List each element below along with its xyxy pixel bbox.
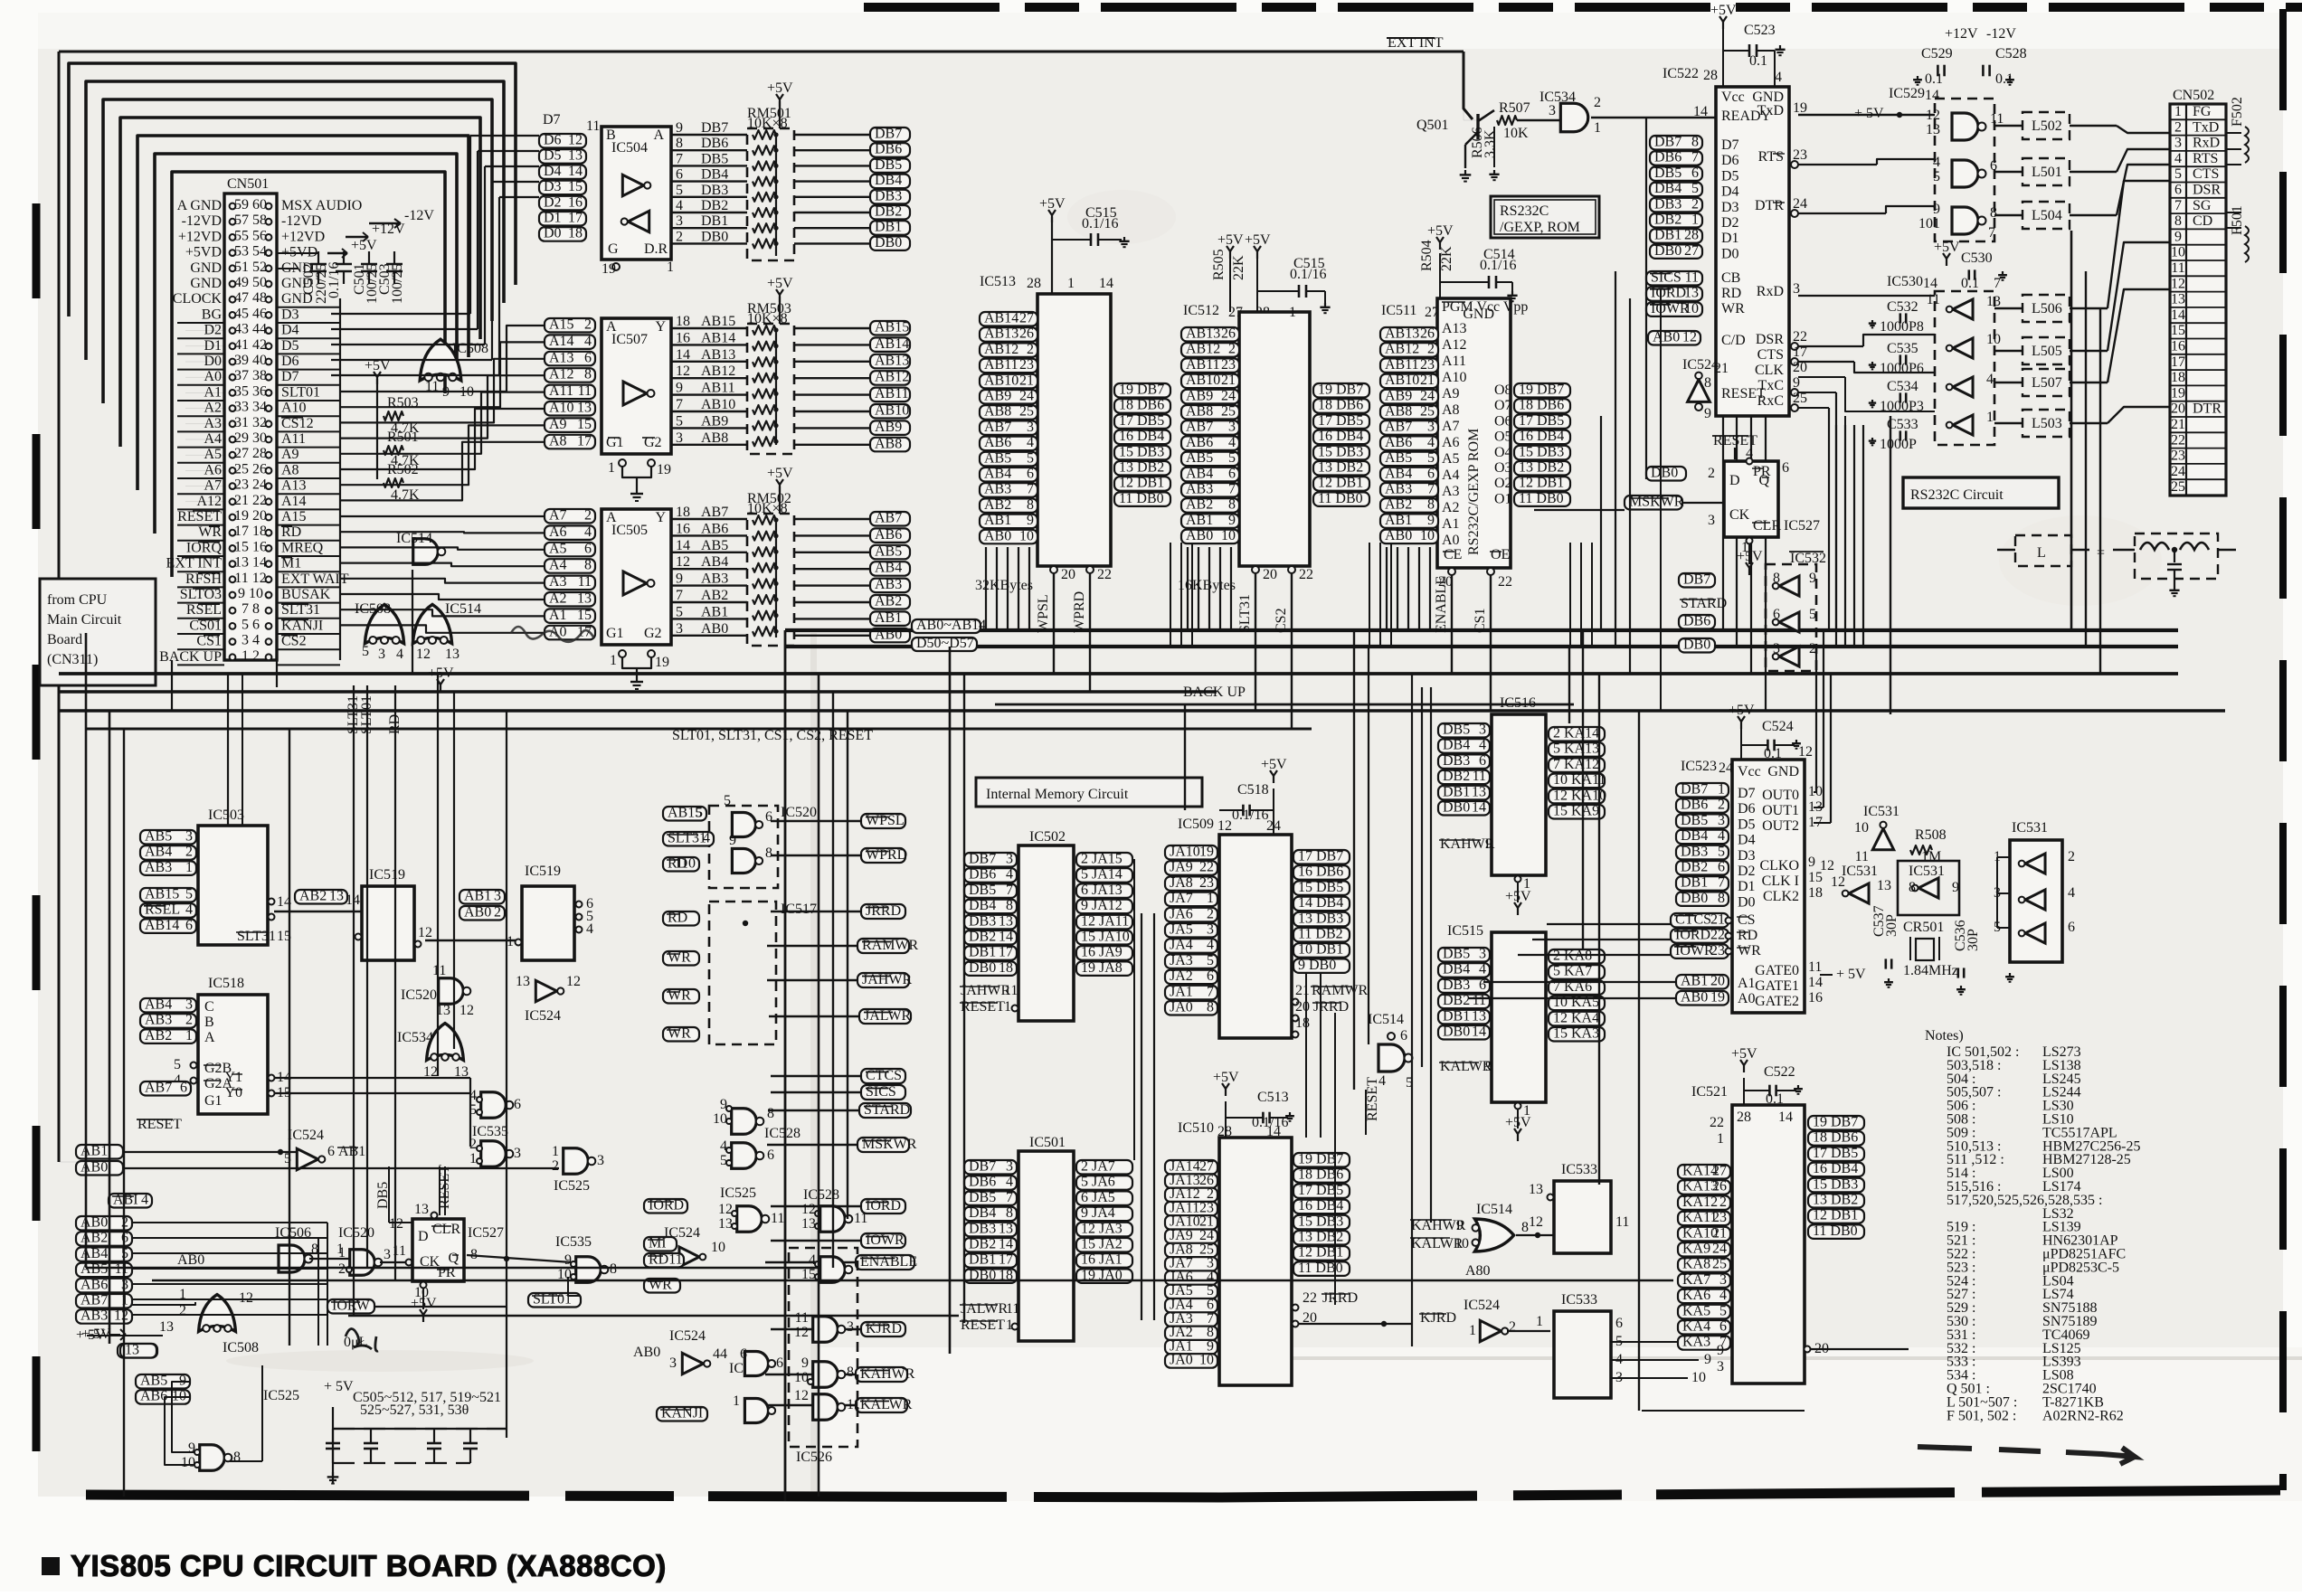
- svg-text:G1: G1: [204, 1093, 223, 1109]
- svg-text:A13: A13: [1442, 321, 1467, 336]
- svg-text:MSX AUDIO: MSX AUDIO: [281, 198, 362, 213]
- svg-text:15 DB3: 15 DB3: [1318, 444, 1363, 459]
- svg-text:D4: D4: [544, 164, 562, 179]
- svg-text:A8: A8: [549, 433, 567, 449]
- svg-text:5: 5: [676, 604, 683, 619]
- svg-text:DB4: DB4: [1681, 828, 1708, 844]
- svg-text:D6: D6: [1721, 153, 1739, 168]
- svg-text:Main Circuit: Main Circuit: [47, 612, 122, 628]
- svg-text:IORD: IORD: [649, 1198, 684, 1214]
- svg-text:+ 5V: + 5V: [1854, 106, 1884, 121]
- svg-text:15 JA2: 15 JA2: [1081, 1237, 1123, 1252]
- svg-text:A10: A10: [281, 401, 307, 416]
- svg-text:CN501: CN501: [227, 176, 269, 192]
- svg-text:1: 1: [1004, 999, 1011, 1015]
- svg-text:2: 2: [1027, 342, 1034, 357]
- svg-text:AB1: AB1: [701, 604, 728, 619]
- svg-text:A12: A12: [196, 494, 222, 509]
- svg-text:27: 27: [1019, 311, 1034, 326]
- svg-text:+5V: +5V: [1261, 757, 1287, 772]
- svg-text:DB5: DB5: [875, 157, 902, 173]
- svg-text:IC524: IC524: [525, 1008, 561, 1024]
- svg-text:SG: SG: [2193, 198, 2212, 213]
- svg-text:AB14: AB14: [875, 336, 909, 352]
- svg-text:23: 23: [2171, 449, 2185, 464]
- svg-text:10: 10: [2171, 245, 2185, 260]
- svg-text:IC508: IC508: [223, 1340, 259, 1355]
- svg-text:AB6: AB6: [1385, 435, 1412, 450]
- svg-text:7: 7: [1228, 482, 1236, 497]
- svg-text:39 40: 39 40: [234, 353, 267, 368]
- svg-text:4: 4: [2068, 885, 2075, 901]
- svg-text:16 DB4: 16 DB4: [1298, 1198, 1343, 1214]
- svg-text:AB9: AB9: [984, 389, 1011, 404]
- svg-text:D5: D5: [544, 148, 562, 164]
- svg-text:101: 101: [1918, 216, 1940, 231]
- svg-text:3: 3: [847, 1319, 854, 1335]
- svg-text:L503: L503: [2032, 416, 2062, 431]
- svg-text:RSEL: RSEL: [145, 902, 180, 918]
- svg-text:C530: C530: [1961, 250, 1993, 266]
- svg-text:JA4: JA4: [1170, 938, 1193, 953]
- svg-text:OUT1: OUT1: [1762, 803, 1799, 818]
- svg-text:27: 27: [1684, 243, 1699, 259]
- svg-text:D3: D3: [544, 179, 562, 194]
- svg-text:1: 1: [1718, 782, 1725, 798]
- svg-text:4: 4: [584, 524, 592, 540]
- svg-text:A2: A2: [204, 401, 222, 416]
- svg-text:DB2: DB2: [1654, 212, 1682, 228]
- svg-text:A11: A11: [549, 383, 573, 399]
- svg-text:CS2: CS2: [1274, 608, 1289, 633]
- svg-text:5 JA14: 5 JA14: [1081, 867, 1123, 883]
- svg-text:A10: A10: [549, 401, 574, 416]
- svg-text:12: 12: [676, 554, 690, 570]
- svg-text:8: 8: [676, 136, 683, 151]
- svg-text:JRRD: JRRD: [866, 903, 901, 919]
- svg-text:+5V: +5V: [1710, 3, 1737, 18]
- svg-text:4: 4: [1479, 962, 1486, 977]
- svg-text:SLT01: SLT01: [281, 384, 320, 400]
- svg-text:A8: A8: [281, 462, 299, 477]
- svg-text:1000P8: 1000P8: [1880, 319, 1924, 335]
- svg-text:1: 1: [1691, 212, 1699, 228]
- svg-text:32KBytes: 32KBytes: [975, 578, 1033, 593]
- svg-text:DB2: DB2: [1443, 993, 1470, 1008]
- svg-text:D0: D0: [204, 354, 222, 369]
- svg-text:5: 5: [362, 644, 369, 659]
- svg-text:A: A: [606, 510, 617, 525]
- svg-text:13: 13: [1529, 1182, 1543, 1197]
- svg-text:ENABLE: ENABLE: [1434, 576, 1449, 633]
- svg-text:AB4: AB4: [145, 997, 172, 1013]
- svg-text:C535: C535: [1887, 341, 1918, 356]
- svg-text:2: 2: [1509, 1319, 1516, 1335]
- svg-text:4: 4: [141, 1193, 148, 1208]
- svg-text:IC507: IC507: [611, 332, 648, 347]
- svg-text:DB0: DB0: [1443, 1025, 1470, 1040]
- svg-text:19 DB7: 19 DB7: [1519, 382, 1564, 398]
- svg-text:AB6: AB6: [1186, 435, 1213, 450]
- svg-text:IC510: IC510: [1178, 1120, 1214, 1136]
- svg-text:17: 17: [999, 1252, 1013, 1268]
- svg-text:3: 3: [1479, 722, 1486, 738]
- svg-text:-12VD: -12VD: [281, 213, 321, 229]
- svg-text:2 JA7: 2 JA7: [1081, 1159, 1115, 1175]
- svg-text:18 DB6: 18 DB6: [1119, 398, 1164, 413]
- svg-text:15 KA3: 15 KA3: [1553, 1026, 1599, 1042]
- svg-text:3: 3: [1228, 420, 1236, 435]
- svg-text:1: 1: [185, 860, 193, 875]
- svg-text:AB7: AB7: [984, 420, 1011, 435]
- svg-text:DB5: DB5: [1443, 722, 1470, 738]
- svg-text:2: 2: [1207, 906, 1214, 921]
- svg-text:13: 13: [1684, 286, 1699, 301]
- svg-text:GND: GND: [1767, 764, 1799, 779]
- svg-text:DB2: DB2: [969, 930, 996, 945]
- svg-text:1: 1: [733, 1393, 740, 1409]
- svg-text:SLT31: SLT31: [237, 929, 276, 944]
- svg-text:-12VD: -12VD: [182, 213, 222, 229]
- svg-text:9: 9: [2174, 229, 2182, 244]
- svg-text:10: 10: [1986, 332, 2001, 347]
- svg-text:28: 28: [1703, 68, 1718, 83]
- svg-text:IC533: IC533: [1561, 1292, 1597, 1308]
- svg-text:12: 12: [794, 1325, 809, 1340]
- svg-text:8: 8: [1691, 135, 1699, 150]
- svg-text:18: 18: [676, 505, 690, 520]
- svg-text:OUT2: OUT2: [1762, 818, 1799, 834]
- svg-text:AB12: AB12: [984, 342, 1018, 357]
- svg-text:Vcc: Vcc: [1738, 764, 1761, 779]
- svg-text:O1: O1: [1494, 491, 1512, 506]
- svg-text:12: 12: [416, 647, 431, 662]
- svg-text:GND: GND: [1463, 307, 1494, 322]
- svg-text:8: 8: [311, 1242, 318, 1257]
- svg-text:AB10: AB10: [701, 397, 735, 412]
- svg-text:AB5: AB5: [875, 543, 902, 559]
- svg-text:IC522: IC522: [1663, 66, 1699, 81]
- svg-text:L507: L507: [2032, 375, 2062, 391]
- svg-text:KA8: KA8: [1682, 1257, 1710, 1272]
- svg-text:3: 3: [378, 647, 385, 662]
- svg-text:12: 12: [794, 1388, 809, 1403]
- svg-text:SICS: SICS: [1651, 270, 1682, 286]
- svg-text:A7: A7: [549, 508, 567, 524]
- svg-text:AB0: AB0: [633, 1345, 660, 1360]
- svg-text:19 20: 19 20: [234, 508, 267, 524]
- svg-text:A0: A0: [1738, 991, 1756, 1006]
- svg-text:ABI: ABI: [113, 1193, 138, 1208]
- svg-text:8: 8: [767, 1106, 774, 1121]
- svg-text:14: 14: [1778, 1110, 1793, 1125]
- svg-text:C534: C534: [1887, 379, 1918, 394]
- svg-text:22: 22: [1303, 1290, 1317, 1306]
- svg-text:A0: A0: [204, 369, 222, 384]
- svg-text:DB5: DB5: [969, 883, 996, 898]
- svg-text:SLT31: SLT31: [1237, 594, 1253, 633]
- svg-text:4: 4: [584, 334, 592, 349]
- svg-text:15 DB3: 15 DB3: [1119, 444, 1164, 459]
- svg-text:24: 24: [1019, 389, 1034, 404]
- svg-text:IC531: IC531: [1863, 804, 1899, 819]
- svg-text:9: 9: [1456, 1218, 1464, 1233]
- svg-text:6: 6: [1427, 466, 1435, 481]
- svg-text:D4: D4: [281, 323, 299, 338]
- svg-text:WR: WR: [668, 988, 691, 1004]
- svg-text:JA5: JA5: [1170, 922, 1193, 938]
- svg-text:DB3: DB3: [1654, 196, 1682, 212]
- svg-text:3: 3: [1717, 1359, 1724, 1374]
- svg-text:A1: A1: [204, 384, 222, 400]
- svg-text:DSR: DSR: [2193, 183, 2221, 198]
- svg-text:10K: 10K: [1503, 126, 1529, 141]
- svg-text:DB1: DB1: [969, 1252, 996, 1268]
- svg-text:D4: D4: [1721, 184, 1739, 200]
- svg-text:G: G: [608, 241, 619, 257]
- svg-text:AB0: AB0: [464, 905, 491, 921]
- svg-text:17 DB5: 17 DB5: [1318, 413, 1363, 429]
- svg-text:12: 12: [418, 925, 432, 940]
- svg-text:DB6: DB6: [1681, 798, 1708, 813]
- svg-text:10: 10: [1684, 301, 1699, 316]
- svg-text:12: 12: [566, 974, 581, 989]
- svg-text:15: 15: [577, 417, 592, 432]
- svg-text:KA12: KA12: [1682, 1195, 1718, 1210]
- svg-text:A4: A4: [1442, 467, 1460, 483]
- svg-text:2: 2: [1809, 641, 1816, 656]
- svg-text:4: 4: [2174, 151, 2182, 166]
- svg-text:+5V: +5V: [1934, 240, 1960, 255]
- svg-text:13: 13: [1877, 878, 1891, 893]
- svg-text:RESET: RESET: [961, 999, 1005, 1015]
- svg-text:19: 19: [657, 462, 671, 477]
- svg-text:IC535: IC535: [555, 1234, 592, 1250]
- svg-text:DB0: DB0: [1443, 800, 1470, 816]
- svg-text:2: 2: [1594, 95, 1601, 110]
- svg-text:AB5: AB5: [984, 450, 1011, 466]
- svg-text:WPRD: WPRD: [866, 847, 907, 863]
- svg-text:KA9: KA9: [1682, 1242, 1710, 1257]
- svg-text:6 JA13: 6 JA13: [1081, 883, 1123, 898]
- svg-text:4: 4: [713, 1346, 720, 1362]
- svg-text:8: 8: [1773, 571, 1780, 586]
- svg-text:AB2: AB2: [145, 1028, 172, 1044]
- svg-text:A: A: [653, 127, 664, 143]
- svg-text:AB0: AB0: [984, 528, 1011, 543]
- svg-text:9: 9: [1933, 202, 1940, 217]
- svg-text:11: 11: [1855, 849, 1869, 864]
- svg-text:23: 23: [1420, 357, 1435, 373]
- svg-text:C533: C533: [1887, 417, 1918, 432]
- svg-text:11 DB0: 11 DB0: [1119, 491, 1164, 506]
- svg-text:D.R: D.R: [644, 241, 668, 257]
- svg-text:6: 6: [1027, 467, 1034, 482]
- svg-text:AB4: AB4: [145, 845, 172, 860]
- svg-text:DB0: DB0: [1654, 243, 1682, 259]
- svg-text:1: 1: [1717, 1131, 1724, 1147]
- svg-text:AB4: AB4: [875, 561, 902, 576]
- svg-text:AB4: AB4: [81, 1246, 108, 1261]
- svg-text:F501: F501: [2230, 205, 2245, 235]
- svg-text:15: 15: [2171, 323, 2185, 338]
- svg-text:5: 5: [1207, 953, 1214, 968]
- svg-text:TxC: TxC: [1758, 378, 1784, 393]
- svg-text:13: 13: [159, 1319, 174, 1335]
- svg-text:12 DB1: 12 DB1: [1813, 1208, 1858, 1223]
- svg-text:Y: Y: [655, 319, 666, 335]
- svg-text:IC535: IC535: [472, 1124, 508, 1139]
- svg-text:IC520: IC520: [401, 987, 437, 1003]
- svg-text:IC528: IC528: [764, 1126, 800, 1141]
- svg-text:7: 7: [1427, 482, 1435, 497]
- svg-text:3: 3: [1427, 420, 1435, 435]
- svg-text:2: 2: [676, 229, 683, 244]
- svg-text:WPSL: WPSL: [1036, 594, 1051, 633]
- svg-text:A13: A13: [281, 478, 307, 494]
- svg-text:5 JA6: 5 JA6: [1081, 1175, 1115, 1190]
- svg-text:3: 3: [1708, 513, 1715, 528]
- svg-text:4: 4: [396, 647, 403, 662]
- svg-text:IC513: IC513: [980, 274, 1016, 289]
- svg-text:DB3: DB3: [875, 188, 902, 203]
- svg-text:26: 26: [1420, 326, 1435, 342]
- svg-text:15 DB3: 15 DB3: [1298, 1214, 1343, 1229]
- svg-text:0.1: 0.1: [1961, 276, 1979, 291]
- svg-text:AB12: AB12: [701, 364, 735, 379]
- svg-text:RD: RD: [668, 911, 687, 926]
- svg-text:JA0: JA0: [1170, 1000, 1193, 1015]
- svg-text:B: B: [606, 127, 616, 143]
- svg-text:DB7: DB7: [1681, 782, 1708, 798]
- svg-text:14: 14: [999, 930, 1013, 945]
- svg-text:DB1: DB1: [701, 213, 728, 229]
- svg-text:RESET: RESET: [961, 1317, 1005, 1333]
- svg-text:43 44: 43 44: [234, 322, 267, 337]
- svg-text:17: 17: [999, 945, 1013, 960]
- svg-text:F502: F502: [2230, 97, 2245, 127]
- svg-text:O8: O8: [1494, 382, 1512, 398]
- svg-text:A7: A7: [1442, 419, 1460, 434]
- svg-text:59 60: 59 60: [234, 197, 267, 212]
- svg-text:6: 6: [1719, 1319, 1727, 1335]
- svg-text:RD: RD: [1738, 928, 1757, 943]
- svg-text:A2: A2: [1442, 500, 1460, 515]
- svg-text:525~527, 531, 53θ: 525~527, 531, 53θ: [360, 1402, 469, 1418]
- svg-text:10 KA5: 10 KA5: [1553, 995, 1599, 1010]
- svg-text:CTCS: CTCS: [1675, 912, 1711, 928]
- svg-text:9: 9: [1809, 571, 1816, 586]
- svg-text:1: 1: [507, 934, 514, 949]
- svg-text:22: 22: [1710, 928, 1725, 943]
- svg-text:24: 24: [1712, 1242, 1727, 1257]
- svg-text:9: 9: [676, 571, 683, 587]
- svg-text:19 JA8: 19 JA8: [1081, 960, 1123, 976]
- svg-text:11: 11: [1004, 983, 1018, 998]
- svg-text:8: 8: [1427, 497, 1435, 513]
- svg-text:4: 4: [1027, 435, 1034, 450]
- svg-text:13 DB2: 13 DB2: [1813, 1193, 1858, 1208]
- svg-text:3: 3: [597, 1153, 604, 1168]
- svg-text:JA2: JA2: [1170, 968, 1193, 984]
- svg-text:16 DB4: 16 DB4: [1519, 429, 1564, 444]
- svg-text:8: 8: [584, 367, 592, 382]
- svg-text:D: D: [418, 1229, 429, 1244]
- svg-text:5: 5: [1719, 1303, 1727, 1318]
- svg-text:21: 21: [1019, 373, 1034, 388]
- svg-text:O2: O2: [1494, 476, 1512, 491]
- svg-text:11: 11: [771, 1211, 784, 1226]
- svg-text:11: 11: [1006, 1301, 1019, 1317]
- svg-text:MI: MI: [649, 1236, 667, 1251]
- svg-text:RxD: RxD: [1757, 284, 1784, 299]
- svg-text:23: 23: [1710, 943, 1725, 959]
- svg-text:AB1: AB1: [1681, 974, 1708, 989]
- svg-text:5: 5: [1427, 450, 1435, 466]
- svg-text:13: 13: [1926, 122, 1940, 137]
- svg-text:11 DB2: 11 DB2: [1298, 927, 1343, 942]
- svg-text:IC504: IC504: [611, 140, 648, 156]
- svg-text:6: 6: [1400, 1028, 1407, 1044]
- svg-text:3: 3: [1719, 1272, 1727, 1288]
- svg-text:D1: D1: [1738, 879, 1756, 894]
- svg-text:D0: D0: [544, 226, 562, 241]
- svg-text:24: 24: [1221, 388, 1236, 403]
- svg-text:10: 10: [1854, 820, 1869, 836]
- svg-text:3: 3: [676, 430, 683, 446]
- svg-text:A14: A14: [549, 334, 574, 349]
- svg-text:1: 1: [610, 653, 617, 668]
- svg-text:3: 3: [2174, 136, 2182, 151]
- svg-text:AB8: AB8: [701, 430, 728, 446]
- svg-text:CLK2: CLK2: [1763, 889, 1799, 904]
- svg-text:+ 5V: + 5V: [1836, 967, 1866, 982]
- svg-text:AB11: AB11: [875, 386, 909, 401]
- svg-text:IC525: IC525: [720, 1185, 756, 1201]
- svg-text:10: 10: [713, 1111, 727, 1127]
- svg-text:A4: A4: [204, 431, 222, 447]
- svg-text:AB2: AB2: [1186, 497, 1213, 513]
- svg-text:11: 11: [1615, 1214, 1629, 1230]
- svg-text:JALWR: JALWR: [864, 1008, 911, 1024]
- svg-text:19 DB7: 19 DB7: [1119, 382, 1164, 398]
- svg-text:9 10: 9 10: [238, 586, 263, 601]
- svg-text:DB0: DB0: [1683, 637, 1710, 653]
- svg-text:10: 10: [1691, 1370, 1706, 1385]
- svg-text:Q: Q: [1758, 473, 1769, 488]
- svg-text:22: 22: [1299, 567, 1313, 582]
- svg-text:5: 5: [1933, 169, 1940, 184]
- svg-text:6: 6: [1615, 1316, 1623, 1331]
- svg-text:AB0: AB0: [81, 1160, 108, 1176]
- svg-text:O4: O4: [1494, 445, 1512, 460]
- svg-text:DB3: DB3: [969, 913, 996, 929]
- svg-text:WPSL: WPSL: [866, 813, 905, 828]
- svg-text:1: 1: [552, 1144, 559, 1159]
- svg-text:2 KA14: 2 KA14: [1553, 726, 1599, 741]
- svg-text:DB1: DB1: [875, 220, 902, 235]
- svg-text:CLR: CLR: [1753, 518, 1781, 534]
- svg-text:12: 12: [718, 1202, 733, 1217]
- svg-text:4: 4: [1228, 435, 1236, 450]
- svg-text:20: 20: [1295, 999, 1310, 1015]
- svg-text:13: 13: [577, 591, 592, 607]
- svg-text:+12V: +12V: [1945, 26, 1978, 42]
- svg-text:D50~D57: D50~D57: [916, 636, 974, 651]
- svg-text:+5V: +5V: [1729, 703, 1755, 718]
- svg-text:BUSAK: BUSAK: [281, 587, 331, 602]
- svg-text:AB8: AB8: [1385, 404, 1412, 420]
